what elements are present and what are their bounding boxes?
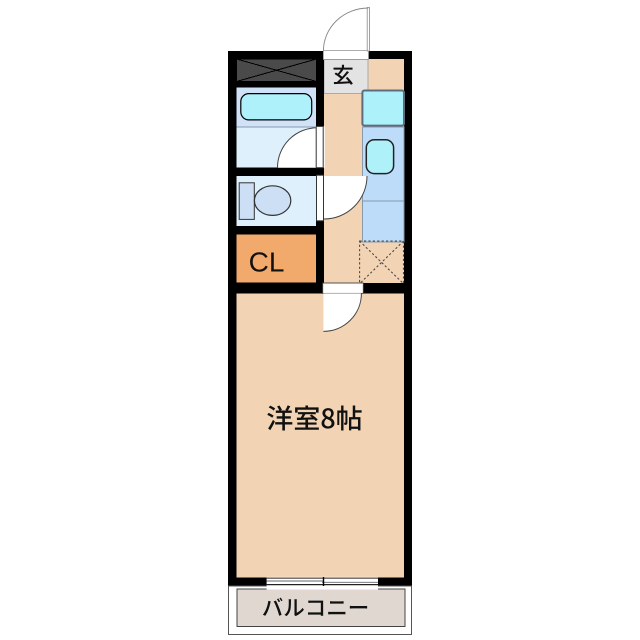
svg-text:CL: CL	[249, 247, 285, 278]
